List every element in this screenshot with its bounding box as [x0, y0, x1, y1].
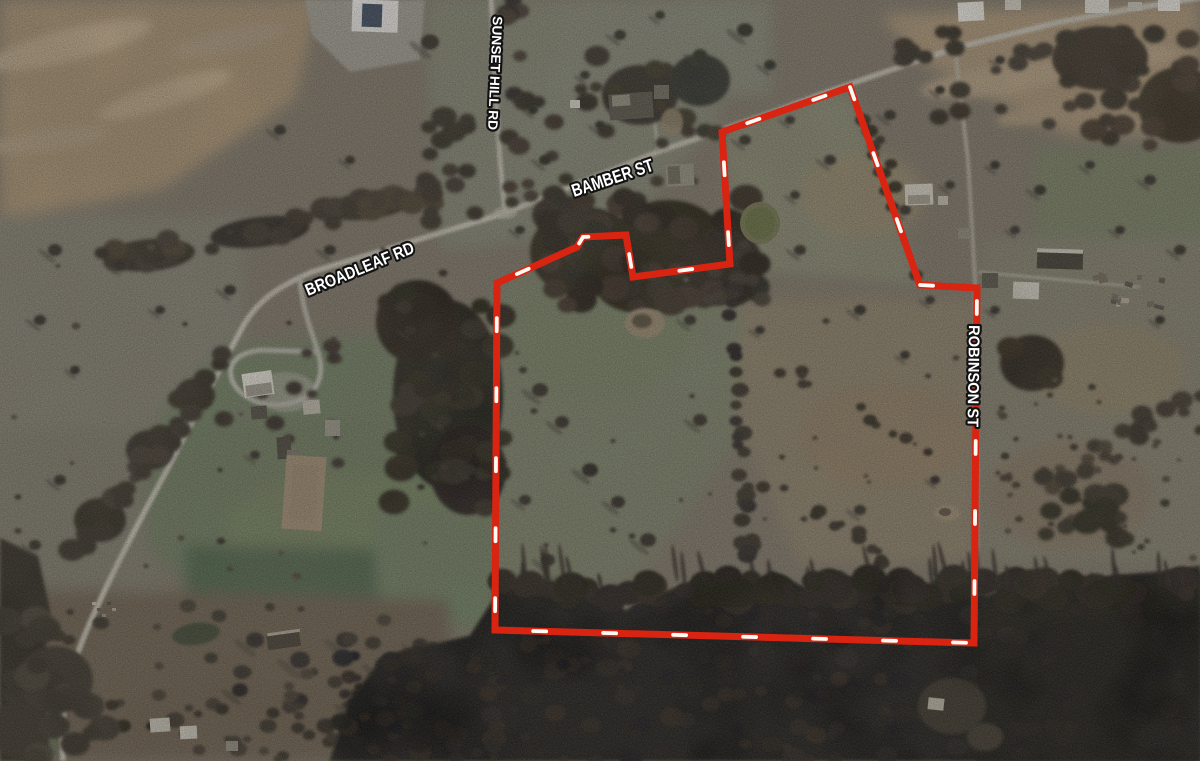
svg-text:ROBINSON ST: ROBINSON ST — [964, 325, 982, 428]
